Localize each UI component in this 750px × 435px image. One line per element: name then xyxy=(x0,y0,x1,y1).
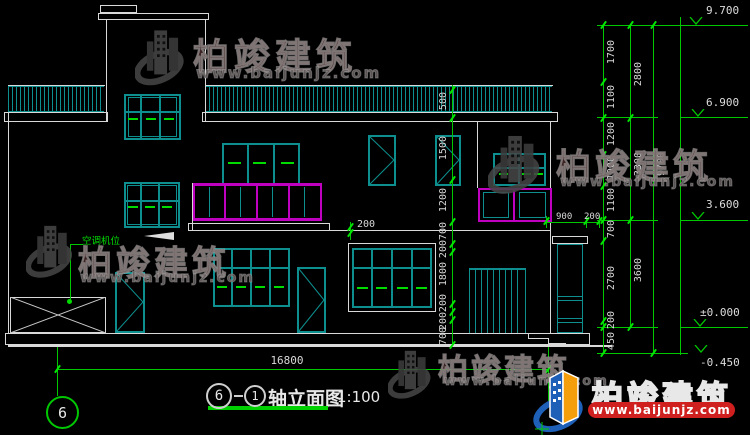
dim-label: 450 xyxy=(607,332,617,350)
watermark-logo xyxy=(488,132,546,196)
grid-line-6 xyxy=(57,347,58,396)
left-wall xyxy=(8,85,9,333)
step-line xyxy=(440,333,528,334)
level-line xyxy=(680,117,748,118)
sash-mark xyxy=(164,118,174,120)
sash-mark xyxy=(357,287,368,289)
dim-label: 2700 xyxy=(607,266,617,290)
stair-baluster xyxy=(475,270,476,333)
level-label: 3.600 xyxy=(706,199,739,210)
watermark-logo xyxy=(388,346,436,402)
tower-cap xyxy=(98,13,209,20)
level-symbol xyxy=(691,212,705,220)
step-line xyxy=(548,343,566,344)
level-symbol xyxy=(693,319,707,327)
watermark-url: www.baijunjz.com xyxy=(560,174,735,190)
dim-label: 200 xyxy=(439,240,449,258)
tower-left-edge xyxy=(106,20,107,122)
dim-label: 200 xyxy=(607,311,617,329)
transom xyxy=(126,200,178,202)
railing-baluster xyxy=(304,187,305,217)
level-label: 6.900 xyxy=(706,97,739,108)
title-dash xyxy=(234,395,243,397)
stair-baluster xyxy=(517,270,518,333)
transom xyxy=(354,267,430,269)
dim-label: 1700 xyxy=(607,40,617,64)
right-wall xyxy=(550,122,551,333)
plinth xyxy=(5,333,590,345)
dim-label: 1800 xyxy=(439,262,449,286)
tower-window-lower-inner xyxy=(127,185,177,225)
railing-post xyxy=(320,183,322,221)
dim-label: 1100 xyxy=(607,85,617,109)
grid-bubble-label: 6 xyxy=(58,404,67,422)
sash-mark xyxy=(416,287,427,289)
mullion xyxy=(391,250,393,306)
stair-baluster xyxy=(487,270,488,333)
stair-baluster xyxy=(505,270,506,333)
sash-mark xyxy=(253,162,266,164)
stair-baluster xyxy=(511,270,512,333)
mullion xyxy=(411,250,413,306)
dim-line xyxy=(546,222,600,223)
railing-post xyxy=(224,186,226,218)
title-axis-left: 6 xyxy=(206,383,232,409)
sash-mark xyxy=(228,162,241,164)
porch-recess-edge xyxy=(477,122,478,188)
railing-post xyxy=(288,186,290,218)
sash-mark xyxy=(128,118,138,120)
sash-mark xyxy=(255,286,265,288)
chain-cross xyxy=(597,353,688,354)
balcony-slab xyxy=(188,223,330,231)
title-axis-right: 1 xyxy=(244,385,266,407)
brand-url: www.baijunjz.com xyxy=(592,403,731,417)
stair-baluster xyxy=(469,270,470,333)
dim-label: 1200 xyxy=(439,188,449,212)
dim-label: 200 xyxy=(357,220,375,230)
brand-logo xyxy=(533,365,593,435)
sash-mark xyxy=(162,206,172,208)
level-symbol xyxy=(689,17,703,25)
cad-elevation-drawing: 空调机位 500 1500 1200 700 200 1800 200 200 … xyxy=(0,0,750,435)
level-symbol xyxy=(694,345,708,353)
railing-baluster xyxy=(240,187,241,217)
sash-mark xyxy=(376,287,387,289)
railing-post xyxy=(193,183,195,221)
grid-bubble-6: 6 xyxy=(46,396,79,429)
level-line xyxy=(680,327,748,328)
railing-baluster xyxy=(272,187,273,217)
porch-band xyxy=(557,318,583,319)
porch-column xyxy=(557,244,583,333)
sash-mark xyxy=(397,287,408,289)
mullion xyxy=(158,184,160,226)
watermark-logo xyxy=(135,26,190,88)
dim-label: 2800 xyxy=(634,62,644,86)
mullion xyxy=(140,184,142,226)
balcony-rail-bottom xyxy=(193,218,322,221)
sash-mark xyxy=(128,206,138,208)
sash-mark xyxy=(217,286,227,288)
porch-band xyxy=(557,322,583,323)
porch-band xyxy=(557,296,583,297)
level-line xyxy=(680,220,748,221)
mullion xyxy=(371,250,373,306)
dim-label: 700 xyxy=(439,327,449,345)
mullion xyxy=(247,145,249,184)
stair-baluster xyxy=(499,270,500,333)
f2-triple-window xyxy=(222,143,300,186)
watermark-logo xyxy=(26,222,78,280)
dim-label: 1100 xyxy=(607,188,617,212)
sash-mark xyxy=(236,286,246,288)
step-line xyxy=(528,338,548,339)
stair-baluster xyxy=(481,270,482,333)
bottom-dim-label: 16800 xyxy=(250,356,324,366)
porch-band xyxy=(557,300,583,301)
dim-label: 700 xyxy=(607,220,617,238)
dim-label: 900 xyxy=(556,212,572,222)
mullion xyxy=(140,96,142,138)
door-swing xyxy=(297,267,326,333)
sash-mark xyxy=(145,206,155,208)
tower-window-upper-inner xyxy=(128,97,177,137)
dim-label: 500 xyxy=(439,92,449,110)
mullion xyxy=(159,96,161,138)
brand-url-pill: www.baijunjz.com xyxy=(588,402,735,418)
coping-main xyxy=(202,112,558,122)
chain-cross xyxy=(597,25,748,26)
porch-cap xyxy=(552,236,588,244)
level-symbol xyxy=(691,109,705,117)
railing-post xyxy=(256,186,258,218)
mullion xyxy=(269,250,271,305)
railing-baluster xyxy=(209,187,210,217)
dim-label: 1500 xyxy=(439,136,449,160)
tower-chimney xyxy=(100,5,137,13)
watermark-url: www.baijunjz.com xyxy=(80,270,255,286)
stair-baluster xyxy=(525,270,526,333)
casement-swing xyxy=(368,135,396,186)
sash-mark xyxy=(274,286,284,288)
roof-railing-main xyxy=(205,86,552,112)
chain-cross xyxy=(597,117,658,118)
ac-unit-cross xyxy=(10,297,106,333)
leader-dot xyxy=(67,299,72,304)
sash-mark xyxy=(146,118,156,120)
stair-baluster xyxy=(493,270,494,333)
mullion xyxy=(273,145,275,184)
axis-number: 6 xyxy=(215,388,223,404)
watermark-url: www.baijunjz.com xyxy=(196,64,381,82)
level-label: -0.450 xyxy=(700,357,740,368)
drawing-scale: 1:100 xyxy=(337,388,380,406)
dim-label: 700 xyxy=(439,222,449,240)
transom xyxy=(126,111,179,113)
level-label: 9.700 xyxy=(706,5,739,16)
dim-label: 200 xyxy=(439,294,449,312)
coping-left xyxy=(4,112,108,122)
level-label: ±0.000 xyxy=(700,307,740,318)
sash-mark xyxy=(281,162,294,164)
dim-label: 3600 xyxy=(634,258,644,282)
roof-railing-left xyxy=(8,86,104,112)
axis-number: 1 xyxy=(251,389,258,403)
